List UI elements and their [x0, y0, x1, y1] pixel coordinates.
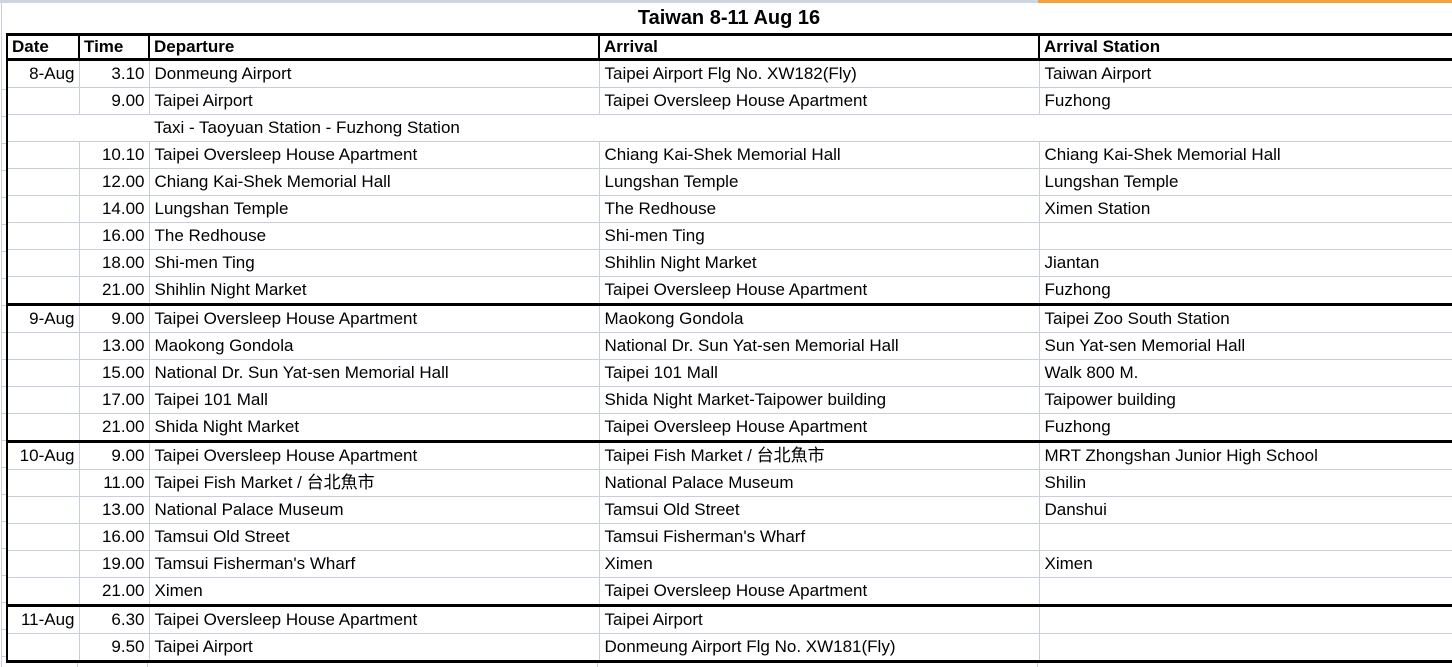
cell-time[interactable]: 9.00 — [79, 305, 149, 333]
cell-date[interactable] — [7, 88, 79, 115]
table-row: 17.00Taipei 101 MallShida Night Market-T… — [7, 387, 1452, 414]
table-row: 9-Aug9.00Taipei Oversleep House Apartmen… — [7, 305, 1452, 333]
cell-departure[interactable]: Taipei Oversleep House Apartment — [149, 606, 599, 634]
cell-arrival-station[interactable] — [1039, 634, 1452, 662]
table-row: 10.10Taipei Oversleep House ApartmentChi… — [7, 142, 1452, 169]
cell-arrival-station[interactable]: Fuzhong — [1039, 414, 1452, 442]
table-row: 9.00Taipei AirportTaipei Oversleep House… — [7, 88, 1452, 115]
cell-date[interactable] — [7, 277, 79, 305]
cell-date[interactable] — [7, 634, 79, 662]
cell-arrival-station[interactable] — [1039, 223, 1452, 250]
table-row: 12.00Chiang Kai-Shek Memorial HallLungsh… — [7, 169, 1452, 196]
cell-time[interactable]: 21.00 — [79, 277, 149, 305]
cell-date[interactable]: 8-Aug — [7, 60, 79, 88]
cell-departure[interactable]: Taipei Airport — [149, 88, 599, 115]
cell-arrival[interactable]: Taipei Oversleep House Apartment — [599, 414, 1039, 442]
cell-arrival[interactable]: Taipei Oversleep House Apartment — [599, 88, 1039, 115]
cell-date[interactable] — [7, 250, 79, 277]
cell-arrival-station[interactable]: Ximen Station — [1039, 196, 1452, 223]
table-row: 13.00National Palace MuseumTamsui Old St… — [7, 497, 1452, 524]
cell-time[interactable]: 10.10 — [79, 142, 149, 169]
cell-arrival[interactable]: Shida Night Market-Taipower building — [599, 387, 1039, 414]
cell-departure[interactable]: National Dr. Sun Yat-sen Memorial Hall — [149, 360, 599, 387]
cell-arrival-station[interactable] — [1039, 524, 1452, 551]
cell-arrival-station[interactable]: Walk 800 M. — [1039, 360, 1452, 387]
table-row: 9.50Taipei AirportDonmeung Airport Flg N… — [7, 634, 1452, 662]
cell-date[interactable] — [7, 551, 79, 578]
gridline-stub — [77, 663, 78, 667]
cell-time[interactable]: 13.00 — [79, 497, 149, 524]
cell-departure[interactable]: Taipei Airport — [149, 634, 599, 662]
cell-arrival[interactable]: Donmeung Airport Flg No. XW181(Fly) — [599, 634, 1039, 662]
table-row: 15.00National Dr. Sun Yat-sen Memorial H… — [7, 360, 1452, 387]
cell-departure[interactable]: Maokong Gondola — [149, 333, 599, 360]
cell-arrival[interactable]: Tamsui Fisherman's Wharf — [599, 524, 1039, 551]
cell-time[interactable]: 13.00 — [79, 333, 149, 360]
cell-arrival-station[interactable]: Chiang Kai-Shek Memorial Hall — [1039, 142, 1452, 169]
cell-arrival-station[interactable]: Taiwan Airport — [1039, 60, 1452, 88]
cell-arrival[interactable]: National Dr. Sun Yat-sen Memorial Hall — [599, 333, 1039, 360]
cell-departure[interactable]: Tamsui Fisherman's Wharf — [149, 551, 599, 578]
header-time[interactable]: Time — [79, 35, 149, 60]
cell-date[interactable] — [7, 578, 79, 606]
itinerary-sheet: Taiwan 8-11 Aug 16 Date Time Departure A… — [6, 3, 1452, 667]
cell-departure[interactable]: Taipei Oversleep House Apartment — [149, 142, 599, 169]
table-row: 10-Aug9.00Taipei Oversleep House Apartme… — [7, 442, 1452, 470]
cell-arrival[interactable]: National Palace Museum — [599, 470, 1039, 497]
cell-arrival[interactable]: Chiang Kai-Shek Memorial Hall — [599, 142, 1039, 169]
cell-arrival-station[interactable]: Ximen — [1039, 551, 1452, 578]
table-row: 8-Aug3.10Donmeung AirportTaipei Airport … — [7, 60, 1452, 88]
cell-arrival-station[interactable] — [1039, 606, 1452, 634]
cell-arrival-station[interactable] — [1039, 578, 1452, 606]
cell-arrival[interactable]: The Redhouse — [599, 196, 1039, 223]
cell-arrival[interactable]: Tamsui Old Street — [599, 497, 1039, 524]
cell-arrival[interactable]: Shihlin Night Market — [599, 250, 1039, 277]
cell-date[interactable] — [7, 142, 79, 169]
table-row: 14.00Lungshan TempleThe RedhouseXimen St… — [7, 196, 1452, 223]
table-row: 13.00Maokong GondolaNational Dr. Sun Yat… — [7, 333, 1452, 360]
cell-date[interactable] — [7, 470, 79, 497]
cell-time[interactable]: 14.00 — [79, 196, 149, 223]
itinerary-body: 8-Aug3.10Donmeung AirportTaipei Airport … — [7, 60, 1452, 662]
cell-time[interactable]: 15.00 — [79, 360, 149, 387]
cell-date[interactable] — [7, 115, 79, 142]
header-date[interactable]: Date — [7, 35, 79, 60]
spreadsheet-view: Taiwan 8-11 Aug 16 Date Time Departure A… — [0, 0, 1452, 667]
cell-date[interactable]: 10-Aug — [7, 442, 79, 470]
table-row: 11-Aug6.30Taipei Oversleep House Apartme… — [7, 606, 1452, 634]
cell-time[interactable]: 12.00 — [79, 169, 149, 196]
gridline-stub — [147, 663, 148, 667]
cell-arrival-station[interactable]: Fuzhong — [1039, 277, 1452, 305]
cell-time[interactable]: 6.30 — [79, 606, 149, 634]
table-row: 21.00Shida Night MarketTaipei Oversleep … — [7, 414, 1452, 442]
cell-time[interactable]: 9.50 — [79, 634, 149, 662]
cell-date[interactable]: 11-Aug — [7, 606, 79, 634]
cell-arrival-station[interactable]: Sun Yat-sen Memorial Hall — [1039, 333, 1452, 360]
header-arrival[interactable]: Arrival — [599, 35, 1039, 60]
header-departure[interactable]: Departure — [149, 35, 599, 60]
table-row: 21.00XimenTaipei Oversleep House Apartme… — [7, 578, 1452, 606]
cell-time[interactable]: 21.00 — [79, 414, 149, 442]
cell-departure[interactable]: Lungshan Temple — [149, 196, 599, 223]
cell-note[interactable]: Taxi - Taoyuan Station - Fuzhong Station — [79, 115, 1452, 142]
cell-date[interactable] — [7, 524, 79, 551]
cell-time[interactable]: 9.00 — [79, 442, 149, 470]
table-row: 18.00Shi-men TingShihlin Night MarketJia… — [7, 250, 1452, 277]
cell-date[interactable] — [7, 196, 79, 223]
cell-arrival-station[interactable]: Danshui — [1039, 497, 1452, 524]
cell-arrival-station[interactable]: Shilin — [1039, 470, 1452, 497]
cell-time[interactable]: 3.10 — [79, 60, 149, 88]
cell-arrival-station[interactable]: Jiantan — [1039, 250, 1452, 277]
gridline-stub — [1037, 663, 1038, 667]
table-row: 19.00Tamsui Fisherman's WharfXimenXimen — [7, 551, 1452, 578]
cell-arrival-station[interactable]: Taipower building — [1039, 387, 1452, 414]
cell-departure[interactable]: Shida Night Market — [149, 414, 599, 442]
cell-date[interactable]: 9-Aug — [7, 305, 79, 333]
cell-departure[interactable]: Shi-men Ting — [149, 250, 599, 277]
cell-arrival-station[interactable]: Taipei Zoo South Station — [1039, 305, 1452, 333]
table-row: 21.00Shihlin Night MarketTaipei Overslee… — [7, 277, 1452, 305]
cell-departure[interactable]: Taipei Oversleep House Apartment — [149, 305, 599, 333]
cell-departure[interactable]: Shihlin Night Market — [149, 277, 599, 305]
table-row: 16.00Tamsui Old StreetTamsui Fisherman's… — [7, 524, 1452, 551]
cell-arrival[interactable]: Lungshan Temple — [599, 169, 1039, 196]
cell-date[interactable] — [7, 223, 79, 250]
cell-date[interactable] — [7, 333, 79, 360]
header-arrival-station[interactable]: Arrival Station — [1039, 35, 1452, 60]
cell-time[interactable]: 19.00 — [79, 551, 149, 578]
cell-departure[interactable]: Tamsui Old Street — [149, 524, 599, 551]
cell-date[interactable] — [7, 497, 79, 524]
cell-time[interactable]: 18.00 — [79, 250, 149, 277]
cell-departure[interactable]: Ximen — [149, 578, 599, 606]
cell-departure[interactable]: Donmeung Airport — [149, 60, 599, 88]
table-row: 16.00The RedhouseShi-men Ting — [7, 223, 1452, 250]
cell-departure[interactable]: The Redhouse — [149, 223, 599, 250]
cell-date[interactable] — [7, 414, 79, 442]
cell-departure[interactable]: Chiang Kai-Shek Memorial Hall — [149, 169, 599, 196]
cell-arrival-station[interactable]: MRT Zhongshan Junior High School — [1039, 442, 1452, 470]
cell-arrival[interactable]: Taipei 101 Mall — [599, 360, 1039, 387]
cell-arrival[interactable]: Taipei Oversleep House Apartment — [599, 277, 1039, 305]
table-row: 11.00Taipei Fish Market / 台北魚市National P… — [7, 470, 1452, 497]
table-row: Taxi - Taoyuan Station - Fuzhong Station — [7, 115, 1452, 142]
itinerary-table: Date Time Departure Arrival Arrival Stat… — [6, 33, 1452, 663]
cell-time[interactable]: 16.00 — [79, 223, 149, 250]
header-row: Date Time Departure Arrival Arrival Stat… — [7, 35, 1452, 60]
cell-departure[interactable]: National Palace Museum — [149, 497, 599, 524]
cell-departure[interactable]: Taipei Oversleep House Apartment — [149, 442, 599, 470]
cell-arrival[interactable]: Shi-men Ting — [599, 223, 1039, 250]
cell-arrival-station[interactable]: Fuzhong — [1039, 88, 1452, 115]
next-row-sliver — [6, 663, 1452, 667]
cell-time[interactable]: 21.00 — [79, 578, 149, 606]
cell-time[interactable]: 11.00 — [79, 470, 149, 497]
cell-time[interactable]: 9.00 — [79, 88, 149, 115]
cell-departure[interactable]: Taipei Fish Market / 台北魚市 — [149, 470, 599, 497]
cell-departure[interactable]: Taipei 101 Mall — [149, 387, 599, 414]
cell-arrival[interactable]: Taipei Airport Flg No. XW182(Fly) — [599, 60, 1039, 88]
cell-time[interactable]: 16.00 — [79, 524, 149, 551]
cell-arrival-station[interactable]: Lungshan Temple — [1039, 169, 1452, 196]
cell-arrival[interactable]: Taipei Oversleep House Apartment — [599, 578, 1039, 606]
cell-arrival[interactable]: Taipei Fish Market / 台北魚市 — [599, 442, 1039, 470]
cell-date[interactable] — [7, 387, 79, 414]
sheet-title[interactable]: Taiwan 8-11 Aug 16 — [6, 3, 1452, 33]
cell-arrival[interactable]: Ximen — [599, 551, 1039, 578]
cell-arrival[interactable]: Maokong Gondola — [599, 305, 1039, 333]
cell-date[interactable] — [7, 169, 79, 196]
gridline-stub — [597, 663, 598, 667]
cell-time[interactable]: 17.00 — [79, 387, 149, 414]
cell-date[interactable] — [7, 360, 79, 387]
cell-arrival[interactable]: Taipei Airport — [599, 606, 1039, 634]
